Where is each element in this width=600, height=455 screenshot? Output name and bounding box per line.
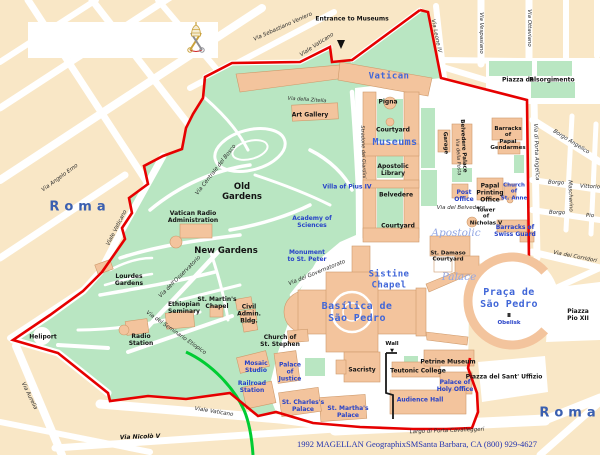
label-piazza-sant-uffizio: Piazza del Sant' Uffizio	[466, 373, 543, 380]
label-borgo-pio-left: Borgo	[549, 210, 565, 217]
label-heliport: Heliport	[29, 333, 56, 340]
label-copyright: 1992 MAGELLAN GeographixSMSanta Barbara,…	[297, 439, 537, 449]
label-stradone-dei-giardini: Stradone dei Giardini	[359, 125, 367, 178]
label-petrine-museum: Petrine Museum	[420, 358, 475, 365]
label-viale-vaticano-bottom: Viale Vaticano	[194, 406, 234, 418]
label-borgo-vittorio-right: Vittorio	[580, 183, 600, 190]
label-barracks-of-swiss-guard: Barracks of Swiss Guard	[494, 224, 536, 238]
label-papal-printing-office: Papal Printing Office	[476, 182, 503, 203]
wall-arrow-icon: ▼	[390, 349, 394, 355]
label-via-leone-iv: Via Leone IV	[430, 19, 443, 54]
label-via-ottaviano: Via Ottaviano	[526, 9, 532, 46]
label-radio-station: Radio Station	[129, 333, 154, 347]
label-civil-admin-bldg: Civil Admin. Bldg.	[237, 303, 261, 324]
label-largo-porta-cavalleggeri: Largo di Porta Cavalleggeri	[410, 427, 485, 436]
label-academy-of-sciences: Academy of Sciences	[292, 215, 332, 229]
label-post-office: Post Office	[454, 189, 473, 203]
label-mascherino: Mascherino	[566, 180, 573, 212]
label-via-del-governatorato: Via del Governatorato	[288, 259, 346, 287]
label-new-gardens: New Gardens	[194, 246, 258, 256]
label-sistine-chapel: Sistine Chapel	[369, 269, 410, 290]
label-art-gallery: Art Gallery	[292, 111, 329, 118]
label-viale-vaticano-top: Viale Vaticano	[299, 32, 335, 58]
label-borgo-vittorio-left: Borgo	[548, 180, 565, 187]
label-courtyard-north: Courtyard	[376, 126, 410, 133]
label-monument-to-st-peter: Monument to St. Peter	[288, 249, 327, 263]
label-wall: Wall	[385, 341, 398, 347]
label-lourdes-gardens: Lourdes Gardens	[115, 273, 143, 287]
label-via-dei-corridori: Via dei Corridori	[553, 250, 598, 264]
label-via-di-porta-angelica: Via di Porta Angelica	[532, 123, 540, 180]
label-via-del-seminario-etiopico: Via del Seminario Etiopico	[145, 310, 207, 356]
label-viale-vaticano-left: Viale Vaticano	[105, 209, 128, 247]
label-church-of-st-anne: Church of St. Anne	[501, 182, 527, 201]
label-pigna: Pigna	[378, 98, 397, 105]
label-via-dell-osservatorio: Via dell'Osservatorio	[158, 255, 202, 299]
label-teutonic-college: Teutonic College	[390, 367, 446, 374]
label-mosaic-studio: Mosaic Studio	[244, 360, 267, 374]
label-villa-of-pius-iv: Villa of Pius IV	[323, 183, 372, 190]
map-labels-layer: Entrance to Museums Via Sebastiano Venie…	[0, 0, 600, 455]
label-roma-left: Roma	[49, 200, 110, 215]
label-apostolic: Apostolic	[431, 227, 480, 239]
label-risorgimento: Risorgimento	[529, 76, 574, 83]
label-sacristy: Sacristy	[348, 366, 375, 373]
label-vatican: Vatican	[369, 72, 410, 83]
label-piazza-pio-xii: Piazza Pio XII	[567, 308, 589, 322]
label-courtyard-south: Courtyard	[381, 222, 415, 229]
label-entrance-to-museums: Entrance to Museums	[315, 15, 388, 22]
label-via-nicolo-v: Via Nicolò V	[120, 433, 161, 441]
label-via-del-belvedere: Via del Belvedere	[437, 205, 485, 211]
label-ethiopian-seminary: Ethiopian Seminary	[168, 301, 200, 315]
label-via-angelo-emo: Via Angelo Emo	[41, 163, 80, 193]
label-old-gardens: Old Gardens	[222, 182, 262, 202]
label-railroad-station: Railroad Station	[238, 380, 266, 394]
label-church-of-st-stephen: Church of St. Stephen	[260, 334, 300, 348]
label-borgo-pio-right: Pio	[586, 213, 594, 219]
label-via-aurelia: Via Aurelia	[20, 381, 38, 410]
label-belvedere-palace: Belvedere Palace	[458, 119, 467, 173]
label-st-martins-chapel: St. Martin's Chapel	[197, 296, 236, 310]
label-museums: Museums	[373, 137, 418, 149]
label-via-della-zitella: Via della Zitella	[287, 96, 326, 105]
label-belvedere: Belvedere	[379, 191, 413, 198]
label-via-sebastiano-veniero: Via Sebastiano Veniero	[253, 11, 313, 42]
label-st-charless-palace: St. Charles's Palace	[282, 399, 324, 413]
label-barracks-of-papal-gendarmes: Barracks of Papal Gendarmes	[490, 126, 525, 152]
label-borgo-angelico: Borgo Angelico	[552, 128, 590, 155]
label-vatican-radio-administration: Vatican Radio Administration	[168, 210, 218, 224]
label-palace: Palace	[442, 271, 477, 283]
vatican-city-map: Entrance to Museums Via Sebastiano Venie…	[0, 0, 600, 455]
label-audience-hall: Audience Hall	[397, 396, 444, 403]
label-obelisk: Obelisk	[497, 320, 520, 326]
label-apostolic-library: Apostolic Library	[377, 163, 408, 177]
label-garage: Garage	[441, 132, 449, 155]
label-palace-of-holy-office: Palace of Holy Office	[437, 379, 474, 393]
label-via-vespasiano: Via Vespasiano	[478, 12, 484, 54]
label-st-damaso-courtyard: St. Damaso Courtyard	[430, 251, 465, 264]
label-praca-de-sao-pedro: Praça de São Pedro	[480, 287, 538, 311]
label-roma-right: Roma	[539, 406, 600, 421]
label-st-marthas-palace: St. Martha's Palace	[327, 405, 368, 419]
label-basilica-de-sao-pedro: Basílica de São Pedro	[322, 301, 393, 325]
label-palace-of-justice: Palace of Justice	[279, 361, 302, 382]
